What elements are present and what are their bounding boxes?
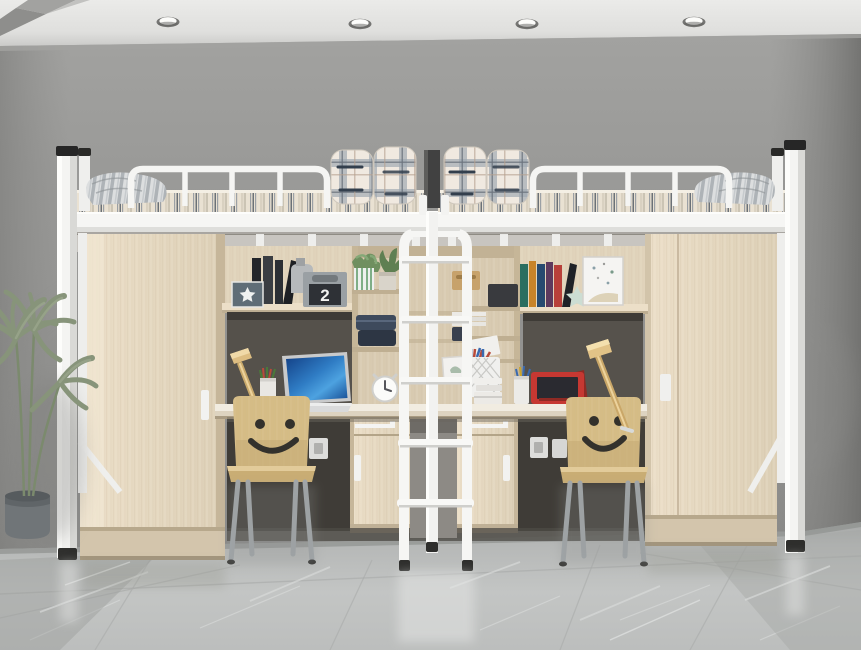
svg-text:2: 2	[320, 286, 329, 305]
